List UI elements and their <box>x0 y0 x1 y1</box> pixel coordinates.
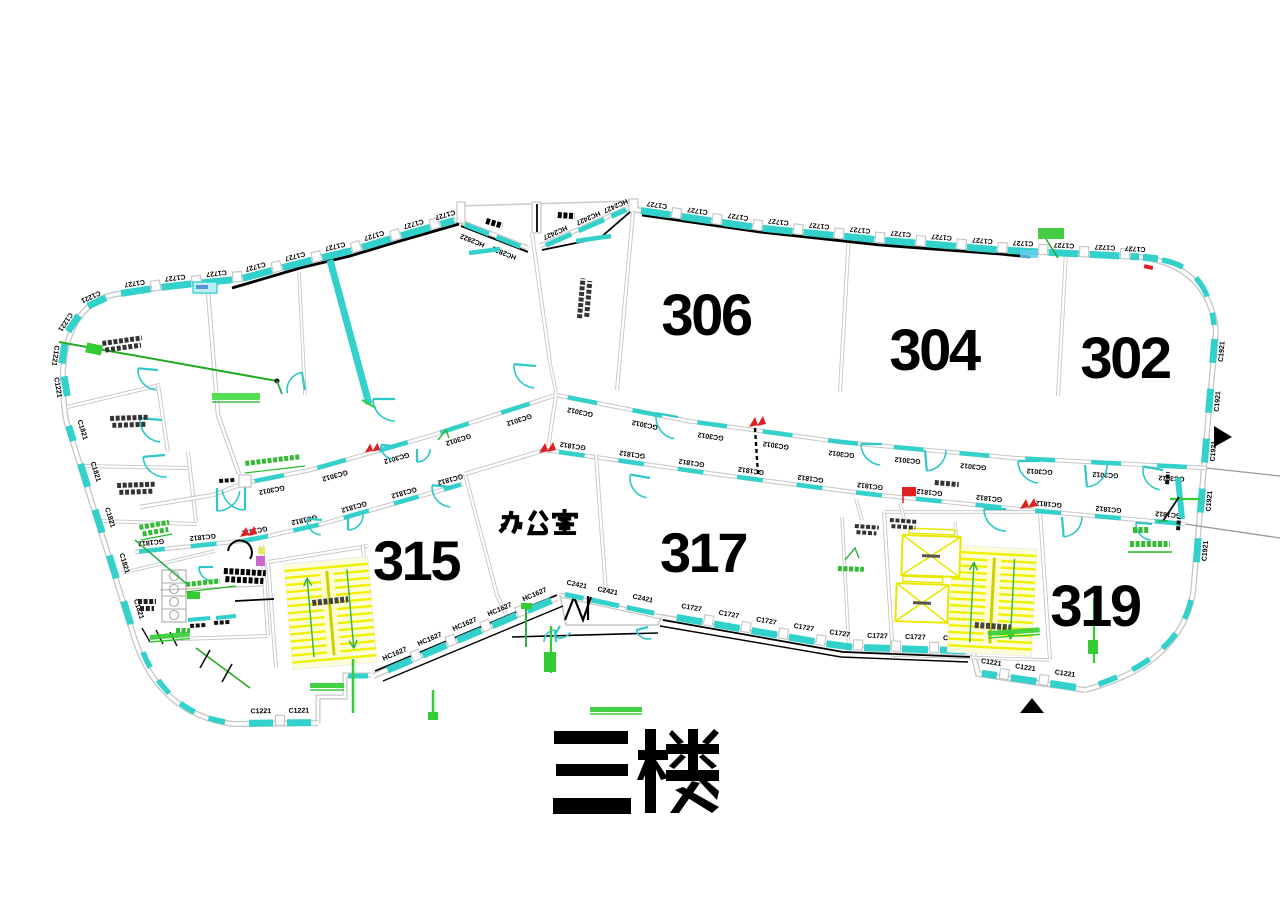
svg-text:C1727: C1727 <box>1125 244 1146 252</box>
svg-text:C1727: C1727 <box>1053 241 1074 249</box>
svg-text:C1221: C1221 <box>289 708 310 715</box>
svg-text:C1727: C1727 <box>1094 243 1115 251</box>
svg-text:319: 319 <box>1050 574 1141 639</box>
svg-text:C1727: C1727 <box>905 634 926 642</box>
svg-text:C1727: C1727 <box>1012 239 1033 247</box>
svg-text:C1727: C1727 <box>867 633 888 641</box>
svg-text:302: 302 <box>1080 326 1170 391</box>
svg-text:GC3012: GC3012 <box>1026 467 1053 475</box>
svg-text:C1221: C1221 <box>251 708 272 715</box>
svg-text:315: 315 <box>373 529 460 592</box>
svg-text:304: 304 <box>889 318 981 383</box>
svg-text:317: 317 <box>660 521 746 584</box>
svg-text:306: 306 <box>661 283 752 348</box>
